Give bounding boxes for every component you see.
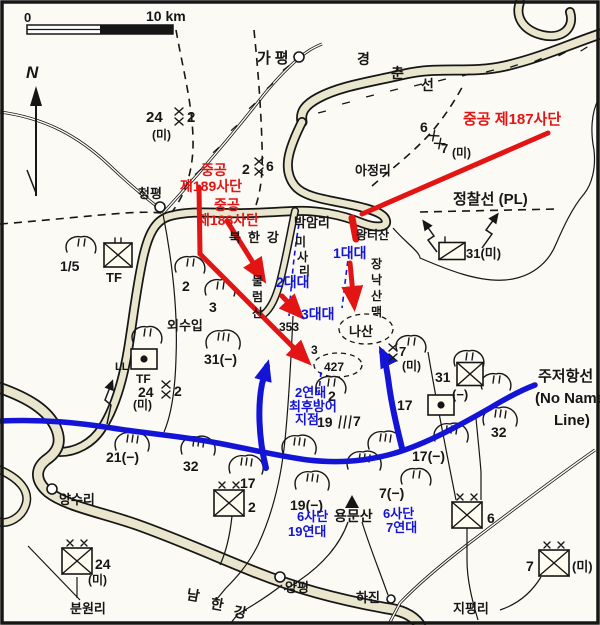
bdy-24: 24 [146,109,163,126]
hill-label-2: 2 [182,278,190,294]
unit-symbol-div6 [452,494,482,528]
unit-div7-mi: (미) [572,559,593,574]
hill-label-32e: 32 [491,424,507,440]
place-yongmunsan: 용문산 [334,508,373,524]
place-yangpyeong: 양평 [285,580,309,595]
ridge-jangnak-3: 산 [371,288,382,303]
place-ajeongni: 아정리 [355,163,391,178]
friendly-bn3-label: 3대대 [301,306,335,322]
hill-label-7minus: 7(−) [379,485,404,501]
mtn-mulleom-3: 산 [252,305,263,320]
unit-tf24-marks: LL [115,361,129,373]
boundary-xx-24-2 [175,108,183,125]
msr-label-en2: Line) [554,412,590,429]
height-427: 427 [324,360,344,374]
place-jipyeongni: 지평리 [453,601,489,616]
unit-symbol-div7 [539,542,569,576]
unit-div6: 6 [487,510,495,526]
hill-label-17w: 17 [240,475,256,491]
unit-div24-mi: (미) [88,572,107,587]
msr-label-en1: (No Name [535,390,600,407]
yongmunsan-battle-map: 0 10 km N 가평 경 춘 선 청평 아정리 박암리 왕터산 정찰선 (P… [0,0,600,625]
pl-line-east [420,209,557,212]
unit-arty17: 17 [397,397,413,413]
unit-tf15: 1/5 [60,258,80,274]
bdy-19: 19 [317,414,333,430]
railway-label-2: 춘 [391,65,404,81]
mtn-mulleom-2: 럼 [252,290,263,304]
hill-label-21minus: 21(−) [106,449,139,465]
scale-distance: 10 km [146,8,186,24]
yongmunsan-peak-icon [345,495,359,508]
ridge-jangnak-2: 낙 [371,272,382,287]
unit-tf24-2: 2 [174,383,182,399]
place-cheongpyeong: 청평 [138,186,162,201]
place-yangsuri: 양수리 [59,492,95,507]
compass-n: N [26,63,39,82]
boundary-lines [28,100,598,624]
unit-tf24-mi: (미) [133,397,152,412]
bdy-19-7: 7 [353,413,361,429]
unit-symbol-div24 [62,540,92,574]
enemy-div188-label-2: 제188사단 [197,212,259,228]
bdy-6-7: 7 [441,141,448,156]
place-misari-2: 사 [297,249,308,264]
unit-symbol-tf24-observation [131,349,157,369]
hill-label-32w: 32 [183,458,199,474]
railway-label-3: 선 [421,77,434,93]
bdy-2-6: 6 [266,158,274,174]
place-hajin: 하진 [356,590,380,605]
friendly-div6reg7-label-2: 7연대 [386,520,417,535]
river-namhan-3: 강 [232,603,248,621]
height-3: 3 [311,343,318,357]
height-353: 353 [279,320,299,334]
friendly-bn1-label: 1대대 [333,245,367,261]
bdy-24-mi: (미) [152,127,171,142]
unit-armor31: 31(미) [466,246,501,261]
enemy-div189-label-1: 중공 [201,162,227,178]
unit-div2: 2 [248,499,256,515]
unit-div24: 24 [95,556,111,572]
friendly-div6reg19-label-1: 6사단 [297,509,328,524]
scale-zero: 0 [24,10,31,25]
place-nasan: 나산 [349,324,373,339]
river-label-bukhangang: 북한강 [229,230,286,245]
msr-label-kr: 주저항선 [538,368,593,385]
bdy-6-mi: (미) [452,145,471,160]
unit-symbol-tf15 [104,238,132,267]
unit-hq31-minus: (−) [452,387,468,402]
bdy-6: 6 [420,119,428,135]
friendly-div6reg19-label-2: 19연대 [288,524,326,539]
bdy-24-2: 2 [187,109,195,126]
friendly-reg2-label-3: 지점 [295,412,319,427]
unit-div7: 7 [526,558,534,574]
bdy-7: 7 [399,344,406,359]
place-misari-1: 미 [295,234,306,249]
unit-symbol-arty17 [428,395,454,415]
bdy-7-mi: (미) [402,358,421,373]
north-arrow [27,86,42,196]
river-namhan-2: 한 [209,595,225,613]
ridge-jangnak-4: 맥 [371,304,382,319]
enemy-div188-label-1: 중공 [214,197,240,213]
mtn-mulleom-1: 물 [252,274,263,288]
pl-line-west [0,212,162,224]
place-bakamni: 박암리 [294,215,330,230]
unit-symbol-armor31 [439,237,465,260]
enemy-div189-label-2: 제189사단 [180,178,242,194]
recon-line-label: 정찰선 (PL) [453,190,528,208]
friendly-reg2-label-1: 2연대 [295,385,326,400]
map-canvas: 0 10 km N 가평 경 춘 선 청평 아정리 박암리 왕터산 정찰선 (P… [0,0,600,625]
unit-symbol-hq31 [457,363,483,386]
hill-label-3: 3 [209,299,217,315]
enemy-div187-label: 중공 제187사단 [463,111,561,128]
friendly-div6reg7-label-1: 6사단 [383,506,414,521]
friendly-bn2-label: 2대대 [276,274,310,290]
unit-tf15-tf: TF [106,270,122,285]
boundary-xx-24-2-south [162,381,170,398]
boundary-iii-19-7 [339,416,351,428]
scale-bar [27,25,173,34]
place-gapyeong: 가평 [257,49,293,67]
unit-hq31: 31 [435,369,451,385]
river-bukhan-upper [302,2,600,122]
hill-label-31minus: 31(−) [204,351,237,367]
place-bunwonni: 분원리 [70,601,106,616]
river-namhan-1: 남 [185,586,201,604]
place-wangteosan: 왕터산 [356,227,389,242]
hill-label-17minus: 17(−) [412,448,445,464]
bdy-2: 2 [242,161,250,177]
railway-label-1: 경 [357,51,370,67]
place-oesuip: 외수입 [167,318,203,333]
ridge-jangnak-1: 장 [371,257,382,271]
